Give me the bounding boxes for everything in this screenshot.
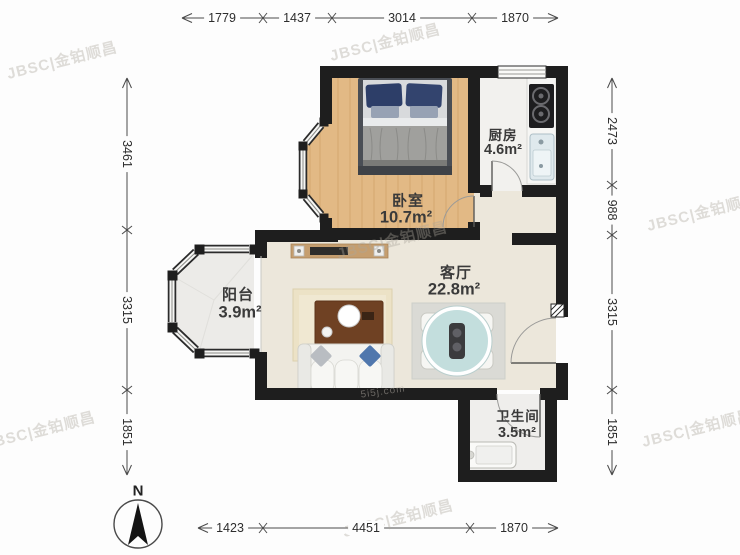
- dim-left-2: 3315: [119, 292, 135, 328]
- dim-bottom-2: 4451: [348, 521, 384, 535]
- dim-bottom-3: 1870: [496, 521, 532, 535]
- north-arrow-icon: [114, 500, 162, 548]
- room-area-living: 22.8m²: [428, 281, 480, 300]
- bathroom-fixture: [464, 442, 516, 468]
- dim-left-1: 3461: [119, 136, 135, 172]
- dim-right-4: 1851: [604, 414, 620, 450]
- dim-right-1: 2473: [604, 113, 620, 149]
- dim-top-3: 3014: [384, 11, 420, 25]
- floorplan-drawing: [0, 0, 740, 555]
- dim-top-1: 1779: [204, 11, 240, 25]
- room-label-bedroom: 卧室: [392, 190, 424, 211]
- tv: [310, 247, 348, 255]
- dim-bottom-1: 1423: [212, 521, 248, 535]
- sofa: [298, 344, 394, 394]
- table-centerpiece: [449, 323, 465, 359]
- room-area-bedroom: 10.7m²: [380, 209, 432, 228]
- bed: [358, 78, 452, 175]
- room-area-kitchen: 4.6m²: [484, 142, 522, 158]
- north-label: N: [133, 483, 144, 500]
- kitchen-counter: [527, 76, 556, 184]
- room-area-balcony: 3.9m²: [218, 304, 261, 323]
- room-label-balcony: 阳台: [222, 284, 254, 305]
- room-label-bathroom: 卫生间: [496, 405, 540, 425]
- tv-stand: [291, 244, 388, 258]
- dining-set: [412, 303, 505, 379]
- dim-right-2: 988: [604, 196, 620, 225]
- foyer-floor: [474, 191, 556, 240]
- dim-right-3: 3315: [604, 294, 620, 330]
- pipe-shaft: [551, 304, 564, 317]
- room-area-bathroom: 3.5m²: [498, 425, 536, 441]
- floorplan-canvas: JBSC|金铂顺昌 JBSC|金铂顺昌 JBSC|金铂顺昌 JBSC|金铂顺昌 …: [0, 0, 740, 555]
- room-label-living: 客厅: [440, 262, 472, 283]
- coffee-table: [315, 301, 383, 345]
- dim-top-4: 1870: [497, 11, 533, 25]
- dim-top-2: 1437: [279, 11, 315, 25]
- dim-left-3: 1851: [119, 414, 135, 450]
- kitchen-window: [498, 66, 546, 78]
- room-label-kitchen: 厨房: [489, 124, 518, 144]
